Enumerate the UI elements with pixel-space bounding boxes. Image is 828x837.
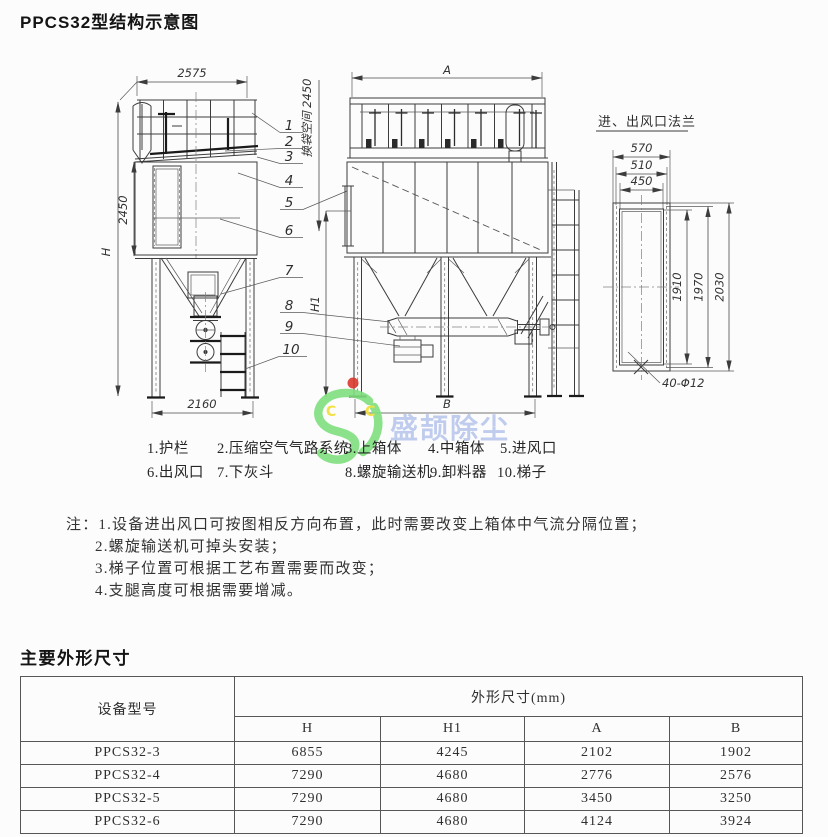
dim-side-H: H	[99, 247, 113, 256]
legend-item-3: 3.上箱体	[345, 437, 402, 458]
value-cell: 3250	[670, 788, 803, 811]
table-row: PPCS32-5 7290 4680 3450 3250	[21, 788, 803, 811]
col-header-B: B	[670, 717, 803, 742]
callout-10: 10	[282, 342, 299, 358]
dimensions-table: 设备型号 外形尺寸(mm) H H1 A B PPCS32-3 6855 424…	[20, 676, 803, 834]
value-cell: 2576	[670, 765, 803, 788]
legend-item-5: 5.进风口	[500, 437, 557, 458]
dim-side-base-width: 2160	[187, 397, 216, 411]
col-header-A: A	[525, 717, 670, 742]
legend-item-8: 8.螺旋输送机	[345, 461, 432, 482]
model-cell: PPCS32-6	[21, 811, 235, 834]
value-cell: 3450	[525, 788, 670, 811]
page-title: PPCS32型结构示意图	[20, 8, 199, 33]
dim-flange-bolts: 40-Φ12	[662, 376, 704, 390]
dim-flange-1970: 1970	[692, 272, 706, 301]
value-cell: 2776	[525, 765, 670, 788]
callout-6: 6	[285, 223, 294, 239]
note-line-3: 3.梯子位置可根据工艺布置需要而改变；	[66, 558, 647, 580]
dims-section-title: 主要外形尺寸	[20, 644, 131, 669]
legend-item-6: 6.出风口	[147, 461, 204, 482]
value-cell: 6855	[235, 742, 381, 765]
value-cell: 4124	[525, 811, 670, 834]
dim-bag-space: 换袋空间 2450	[300, 79, 314, 158]
value-cell: 3924	[670, 811, 803, 834]
value-cell: 7290	[235, 788, 381, 811]
callout-8: 8	[285, 298, 294, 314]
table-row: PPCS32-6 7290 4680 4124 3924	[21, 811, 803, 834]
note-line-4: 4.支腿高度可根据需要增减。	[66, 580, 647, 602]
dim-side-body-height: 2450	[116, 195, 130, 224]
note-line-2: 2.螺旋输送机可掉头安装；	[66, 536, 647, 558]
dim-front-width: A	[442, 63, 451, 77]
logo-letters: C C	[326, 404, 387, 420]
table-row: PPCS32-4 7290 4680 2776 2576	[21, 765, 803, 788]
col-header-dims-group: 外形尺寸(mm)	[235, 677, 803, 717]
model-cell: PPCS32-5	[21, 788, 235, 811]
callout-3: 3	[285, 149, 294, 165]
callout-5: 5	[285, 195, 294, 211]
col-header-H: H	[235, 717, 381, 742]
legend-item-7: 7.下灰斗	[217, 461, 274, 482]
flange-view: 进、出风口法兰 570 510 450 1910 1970	[596, 114, 734, 390]
legend-item-10: 10.梯子	[497, 461, 547, 482]
legend-item-1: 1.护栏	[147, 437, 189, 458]
col-header-model: 设备型号	[21, 677, 235, 742]
catalog-page: PPCS32型结构示意图 2575 H 2450	[0, 0, 828, 837]
value-cell: 4680	[381, 765, 525, 788]
dim-front-H1: H1	[308, 296, 322, 312]
legend-item-2: 2.压缩空气气路系统	[217, 437, 349, 458]
notes-block: 注： 1.设备进出风口可按图相反方向布置，此时需要改变上箱体中气流分隔位置； 2…	[66, 514, 647, 602]
value-cell: 4680	[381, 788, 525, 811]
callout-9: 9	[285, 319, 294, 335]
value-cell: 7290	[235, 765, 381, 788]
dim-flange-2030: 2030	[713, 272, 727, 301]
dim-side-top-width: 2575	[177, 66, 206, 80]
value-cell: 2102	[525, 742, 670, 765]
value-cell: 4245	[381, 742, 525, 765]
dim-front-base-width: B	[443, 397, 451, 411]
logo-red-dot	[348, 378, 359, 389]
table-row: PPCS32-3 6855 4245 2102 1902	[21, 742, 803, 765]
callout-1: 1	[285, 118, 294, 134]
note-line-1: 1.设备进出风口可按图相反方向布置，此时需要改变上箱体中气流分隔位置；	[98, 514, 646, 536]
value-cell: 7290	[235, 811, 381, 834]
dim-flange-510: 510	[631, 158, 653, 172]
model-cell: PPCS32-3	[21, 742, 235, 765]
legend-item-4: 4.中箱体	[428, 437, 485, 458]
legend-item-9: 9.卸料器	[430, 461, 487, 482]
dim-flange-1910: 1910	[670, 272, 684, 301]
model-cell: PPCS32-4	[21, 765, 235, 788]
value-cell: 4680	[381, 811, 525, 834]
front-view: A	[308, 63, 584, 418]
callout-7: 7	[285, 263, 294, 279]
flange-title: 进、出风口法兰	[598, 114, 696, 129]
notes-prefix: 注：	[66, 514, 98, 536]
dim-flange-450: 450	[631, 174, 653, 188]
dim-flange-570: 570	[631, 141, 653, 155]
callout-4: 4	[285, 173, 294, 189]
value-cell: 1902	[670, 742, 803, 765]
callout-2: 2	[285, 134, 294, 150]
col-header-H1: H1	[381, 717, 525, 742]
